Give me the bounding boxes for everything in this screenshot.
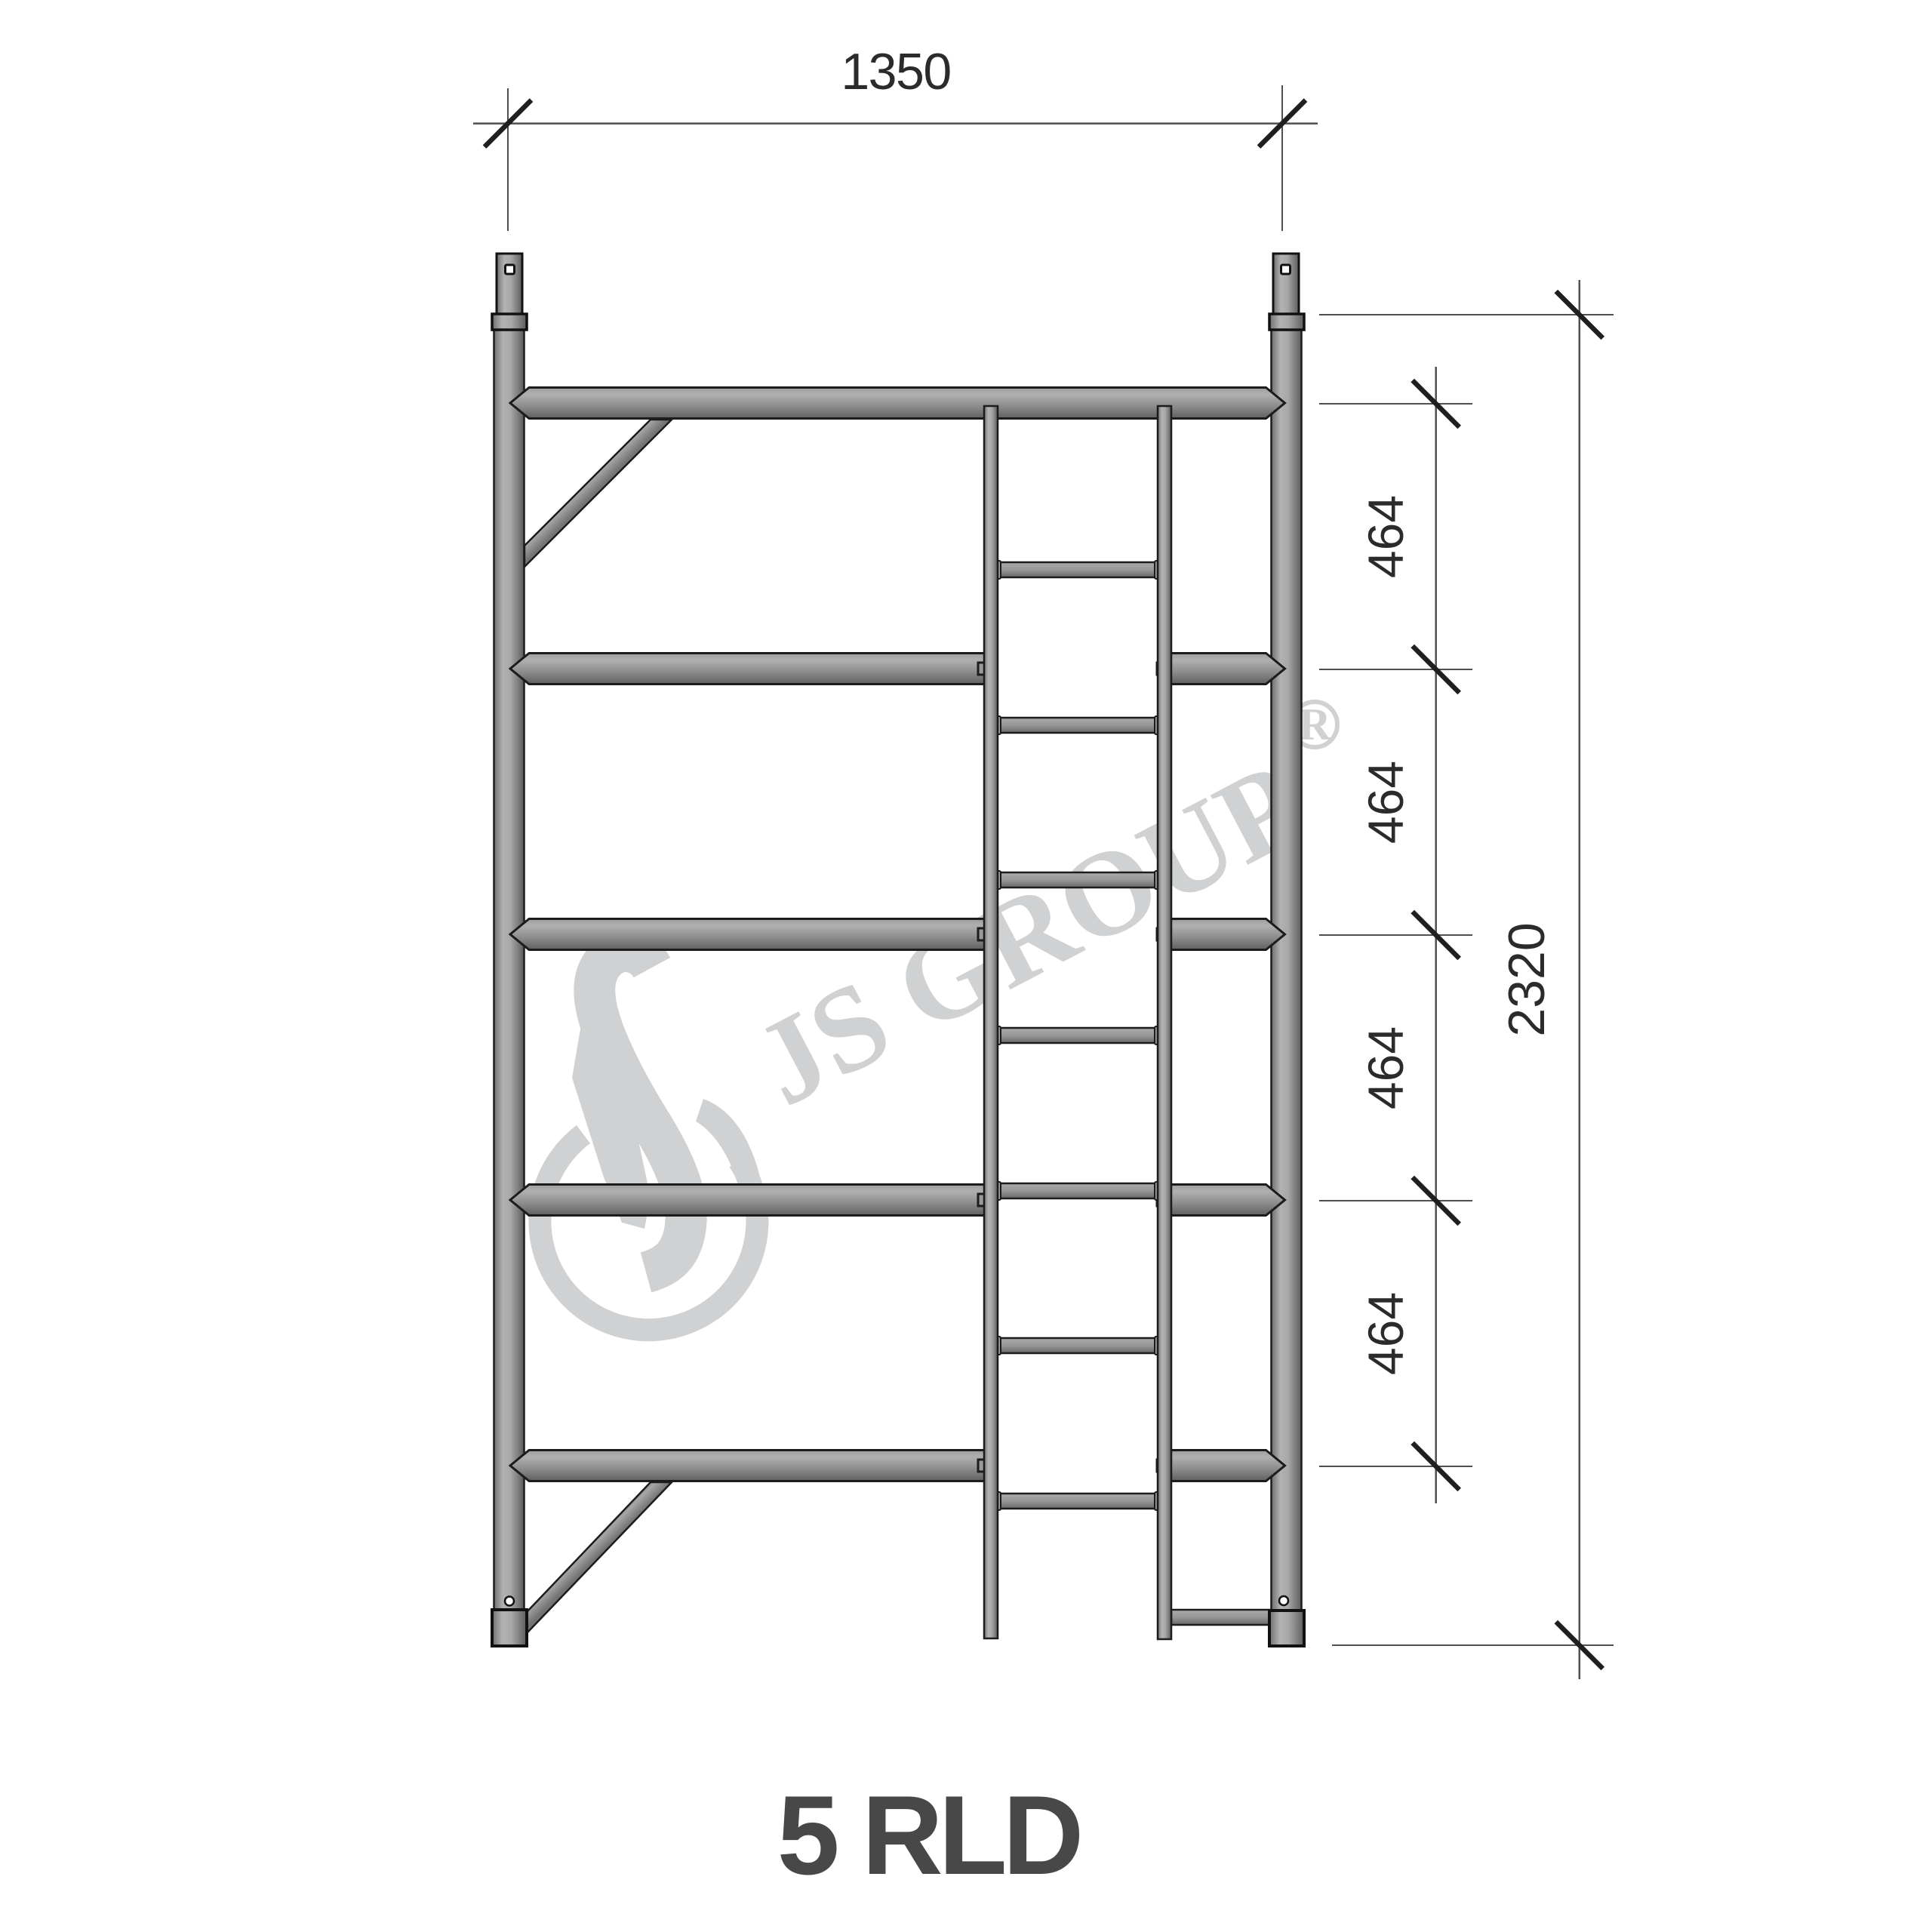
svg-text:1350: 1350 bbox=[841, 43, 950, 100]
svg-text:2320: 2320 bbox=[1498, 922, 1555, 1036]
svg-text:464: 464 bbox=[1358, 495, 1414, 578]
svg-text:464: 464 bbox=[1358, 761, 1414, 844]
svg-text:464: 464 bbox=[1358, 1026, 1414, 1109]
svg-text:5 RLD: 5 RLD bbox=[777, 1772, 1080, 1898]
svg-text:R: R bbox=[1298, 700, 1331, 749]
svg-text:464: 464 bbox=[1358, 1292, 1414, 1375]
